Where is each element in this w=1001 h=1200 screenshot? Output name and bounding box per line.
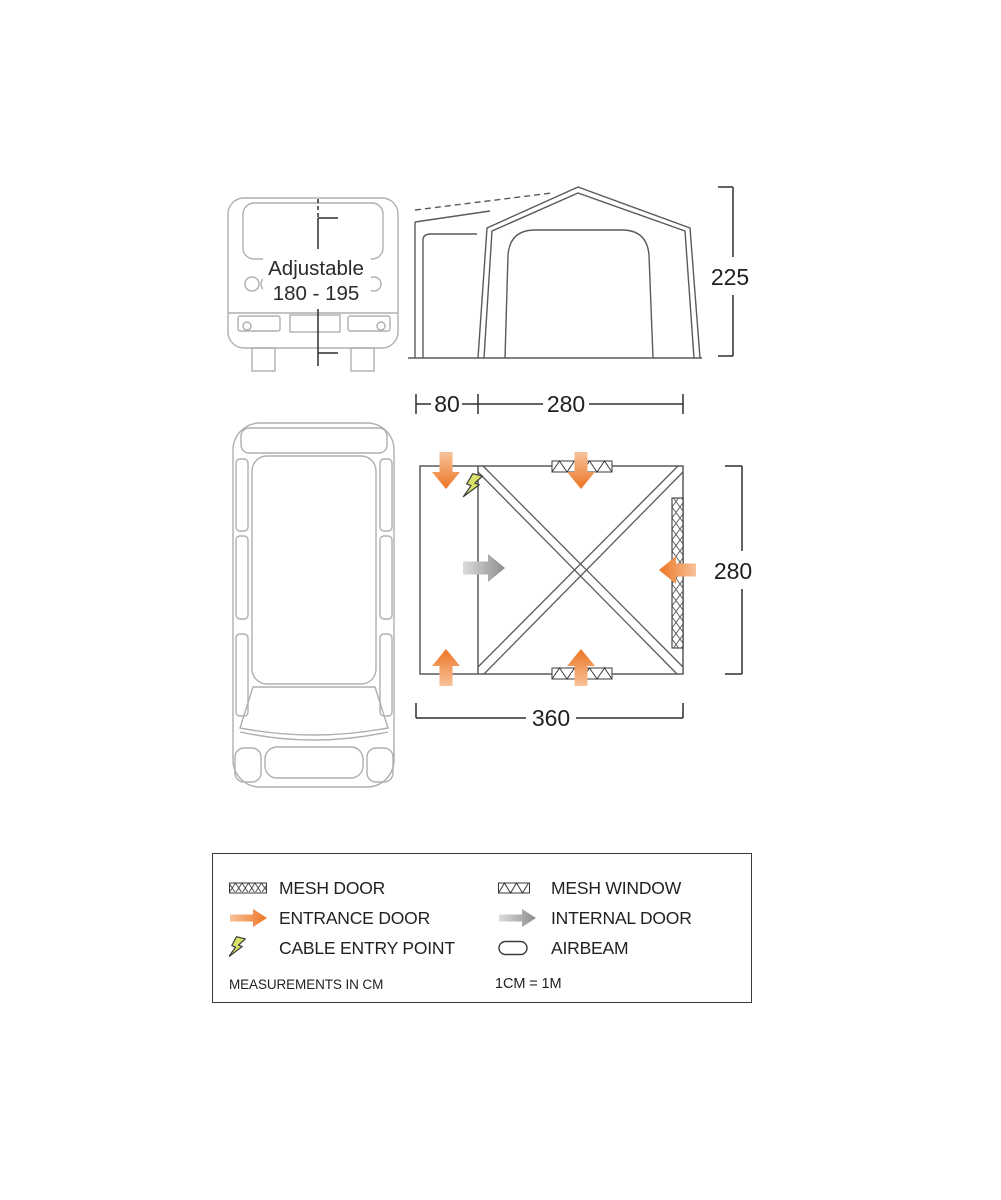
- airbeam-icon: [498, 940, 551, 956]
- legend-label-internal-door: INTERNAL DOOR: [551, 908, 692, 929]
- legend-label-entrance-door: ENTRANCE DOOR: [279, 908, 430, 929]
- roof-panel: [252, 456, 376, 684]
- mesh-door-icon: [229, 882, 279, 894]
- awning-front-elevation-drawing: 225: [400, 175, 760, 375]
- cable-entry-point-icon: [229, 936, 279, 960]
- legend-item-cable-entry: CABLE ENTRY POINT: [229, 936, 455, 960]
- main-tent-outline: [478, 187, 700, 358]
- legend-box: MESH DOOR ENTRANCE DOOR: [212, 853, 752, 1003]
- van-top-view-drawing: [225, 415, 405, 795]
- vehicle-height-dimension: Adjustable 180 - 195: [263, 199, 371, 366]
- front-door-arch: [505, 230, 653, 358]
- dim-80-label: 80: [434, 391, 460, 417]
- legend-label-cable-entry: CABLE ENTRY POINT: [279, 938, 455, 959]
- van-top-body: [233, 423, 394, 787]
- dim-225-label: 225: [711, 264, 749, 290]
- windshield: [240, 687, 388, 735]
- right-depth-dimension: 280: [709, 466, 759, 674]
- legend-label-airbeam: AIRBEAM: [551, 938, 628, 959]
- legend-label-mesh-window: MESH WINDOW: [551, 878, 681, 899]
- dim-360-label: 360: [532, 705, 570, 727]
- legend-item-mesh-door: MESH DOOR: [229, 876, 385, 900]
- scale-note: 1CM = 1M: [495, 976, 561, 992]
- top-width-dimension: 80 280: [416, 391, 683, 417]
- plan-outline: [420, 466, 683, 674]
- adjustable-label-line2: 180 - 195: [273, 282, 360, 305]
- height-dimension-225: 225: [706, 187, 758, 356]
- legend-item-internal-door: INTERNAL DOOR: [498, 906, 692, 930]
- awning-dimension-diagram: Adjustable 180 - 195: [0, 0, 1001, 1200]
- mesh-window-icon: [498, 882, 551, 894]
- front-grille: [265, 747, 363, 778]
- bonnet-line: [240, 732, 388, 740]
- legend-item-entrance-door: ENTRANCE DOOR: [229, 906, 430, 930]
- tailgate-window: [241, 428, 387, 453]
- measurements-note: MEASUREMENTS IN CM: [229, 977, 383, 992]
- adjustable-label-line1: Adjustable: [268, 257, 364, 280]
- internal-door-icon: [498, 907, 551, 929]
- canopy-side-window: [423, 234, 477, 358]
- legend-label-mesh-door: MESH DOOR: [279, 878, 385, 899]
- bottom-width-dimension: 360: [416, 703, 683, 727]
- legend-item-mesh-window: MESH WINDOW: [498, 876, 681, 900]
- entrance-door-icon: [229, 907, 279, 929]
- dim-280-right-label: 280: [714, 558, 752, 584]
- van-rear-view-drawing: Adjustable 180 - 195: [215, 185, 415, 380]
- awning-floor-plan-drawing: 80 280: [400, 375, 760, 727]
- legend-item-airbeam: AIRBEAM: [498, 936, 628, 960]
- dim-280-top-label: 280: [547, 391, 585, 417]
